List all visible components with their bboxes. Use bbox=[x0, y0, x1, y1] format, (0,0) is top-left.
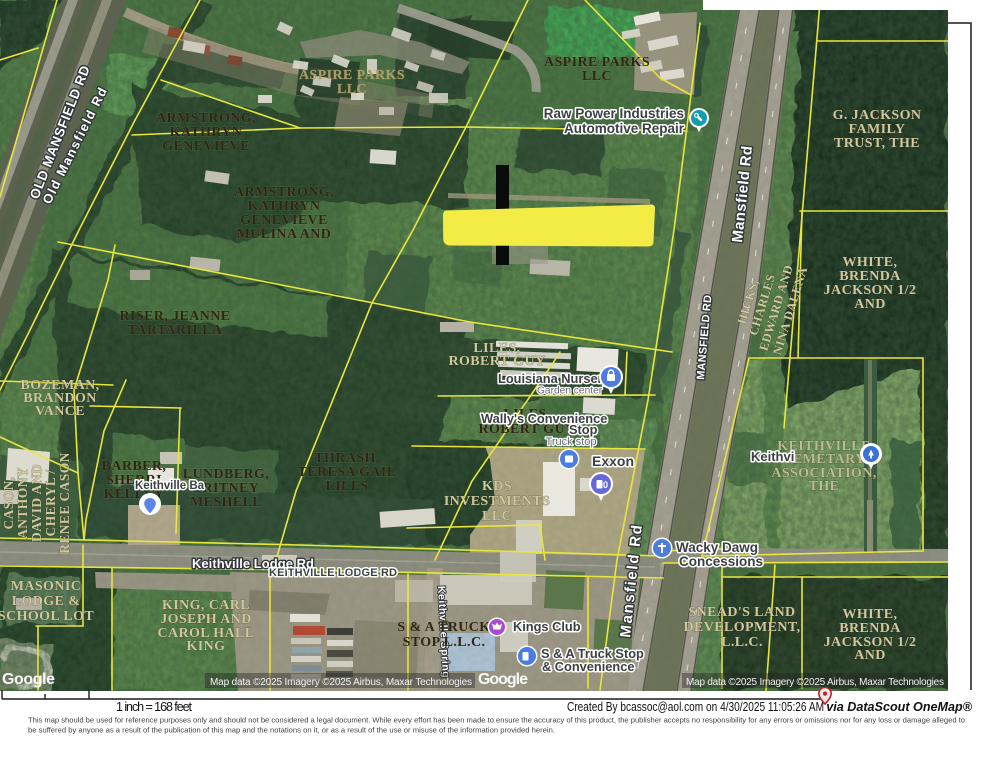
svg-text:SCHOOL LOT: SCHOOL LOT bbox=[0, 609, 94, 624]
svg-text:AND: AND bbox=[854, 297, 886, 312]
svg-text:GENEVIEVE: GENEVIEVE bbox=[162, 139, 250, 154]
svg-text:This map should be used for re: This map should be used for reference pu… bbox=[28, 716, 965, 725]
svg-text:SNEAD'S LAND: SNEAD'S LAND bbox=[688, 605, 795, 620]
svg-text:Louisiana Nursery: Louisiana Nursery bbox=[498, 371, 611, 386]
svg-text:DAVID AND: DAVID AND bbox=[29, 464, 44, 542]
svg-text:Keithvi: Keithvi bbox=[751, 449, 794, 464]
svg-text:MESHELL: MESHELL bbox=[190, 495, 262, 510]
svg-text:Exxon: Exxon bbox=[592, 453, 634, 469]
svg-text:LODGE &: LODGE & bbox=[12, 594, 81, 609]
svg-text:LLC: LLC bbox=[337, 82, 367, 97]
svg-text:via DataScout OneMap®: via DataScout OneMap® bbox=[826, 700, 972, 714]
svg-text:Truck stop: Truck stop bbox=[546, 436, 597, 448]
svg-text:KATHRYN: KATHRYN bbox=[170, 125, 243, 140]
svg-text:AND: AND bbox=[854, 648, 886, 663]
svg-text:S & A TRUCK: S & A TRUCK bbox=[397, 620, 490, 635]
svg-text:WHITE,: WHITE, bbox=[843, 607, 898, 622]
svg-text:KEITHVILLE LODGE RD: KEITHVILLE LODGE RD bbox=[269, 567, 397, 579]
svg-text:THRASH,: THRASH, bbox=[314, 451, 379, 466]
svg-text:STOP L.L.C.: STOP L.L.C. bbox=[403, 635, 486, 650]
svg-text:BRENDA: BRENDA bbox=[839, 621, 901, 636]
svg-text:TARTARILLA: TARTARILLA bbox=[128, 323, 223, 338]
svg-text:GENEVIEVE: GENEVIEVE bbox=[240, 213, 328, 228]
svg-text:WHITE,: WHITE, bbox=[843, 255, 898, 270]
svg-text:be suffered by anyone as a res: be suffered by anyone as a result of the… bbox=[28, 726, 555, 735]
svg-text:RISER, JEANNE: RISER, JEANNE bbox=[120, 309, 231, 324]
svg-text:DEVELOPMENT,: DEVELOPMENT, bbox=[684, 620, 801, 635]
svg-text:TRUST, THE: TRUST, THE bbox=[834, 136, 920, 151]
svg-text:THE: THE bbox=[809, 479, 840, 494]
svg-text:LILES: LILES bbox=[325, 479, 368, 494]
svg-text:KING: KING bbox=[187, 639, 226, 654]
svg-text:KATHRYN: KATHRYN bbox=[248, 199, 321, 214]
svg-text:KDS: KDS bbox=[482, 479, 512, 494]
svg-text:LLC: LLC bbox=[582, 69, 612, 84]
svg-text:ROBERT GUY: ROBERT GUY bbox=[449, 354, 546, 369]
svg-text:Wacky Dawg: Wacky Dawg bbox=[676, 540, 758, 555]
svg-text:Garden center: Garden center bbox=[537, 386, 603, 397]
svg-text:FAMILY: FAMILY bbox=[849, 122, 906, 137]
svg-text:CEMETARY: CEMETARY bbox=[782, 452, 865, 467]
svg-text:TERESA GAIL: TERESA GAIL bbox=[298, 465, 397, 480]
svg-text:LLC: LLC bbox=[482, 509, 512, 524]
svg-text:Map data ©2025 Imagery ©2025 A: Map data ©2025 Imagery ©2025 Airbus, Max… bbox=[210, 677, 472, 688]
svg-text:ANTHONY: ANTHONY bbox=[15, 467, 30, 539]
svg-text:Concessions: Concessions bbox=[679, 554, 763, 569]
svg-text:INVESTMENTS: INVESTMENTS bbox=[444, 494, 550, 509]
svg-text:VANCE: VANCE bbox=[35, 404, 85, 419]
svg-text:Kings Club: Kings Club bbox=[513, 619, 581, 634]
svg-text:Map data ©2025 Imagery ©2025 A: Map data ©2025 Imagery ©2025 Airbus, Max… bbox=[686, 677, 944, 688]
svg-text:RENEE CASON: RENEE CASON bbox=[57, 452, 72, 554]
svg-text:Google: Google bbox=[2, 671, 55, 688]
svg-text:Raw Power Industries: Raw Power Industries bbox=[544, 106, 684, 121]
svg-text:ASPIRE PARKS: ASPIRE PARKS bbox=[299, 68, 405, 83]
svg-text:CASON,: CASON, bbox=[1, 476, 16, 529]
svg-text:ARMSTRONG,: ARMSTRONG, bbox=[156, 111, 256, 126]
svg-text:Automotive Repair: Automotive Repair bbox=[564, 121, 685, 136]
svg-text:ARMSTRONG,: ARMSTRONG, bbox=[234, 185, 334, 200]
svg-text:BRENDA: BRENDA bbox=[839, 269, 901, 284]
svg-text:Keithville Ba: Keithville Ba bbox=[135, 480, 205, 492]
svg-text:Stop: Stop bbox=[569, 422, 598, 437]
svg-text:CHERYL /: CHERYL / bbox=[43, 470, 58, 537]
svg-text:Google: Google bbox=[478, 671, 528, 688]
svg-text:MASONIC: MASONIC bbox=[11, 579, 81, 594]
svg-text:G. JACKSON: G. JACKSON bbox=[833, 108, 922, 123]
svg-text:MULINA AND: MULINA AND bbox=[237, 227, 332, 242]
svg-text:1 inch = 168 feet: 1 inch = 168 feet bbox=[116, 700, 193, 714]
svg-text:JOSEPH AND: JOSEPH AND bbox=[160, 612, 252, 627]
svg-text:Created By bcassoc@aol.com on: Created By bcassoc@aol.com on 4/30/2025 … bbox=[567, 699, 824, 714]
svg-text:& Convenience: & Convenience bbox=[542, 659, 634, 674]
svg-text:L.L.C.: L.L.C. bbox=[721, 635, 763, 650]
svg-text:JACKSON 1/2: JACKSON 1/2 bbox=[824, 283, 917, 298]
svg-text:BARBER,: BARBER, bbox=[102, 459, 167, 474]
svg-text:ASPIRE PARKS: ASPIRE PARKS bbox=[544, 55, 650, 70]
svg-text:KING, CARL: KING, CARL bbox=[162, 598, 250, 613]
